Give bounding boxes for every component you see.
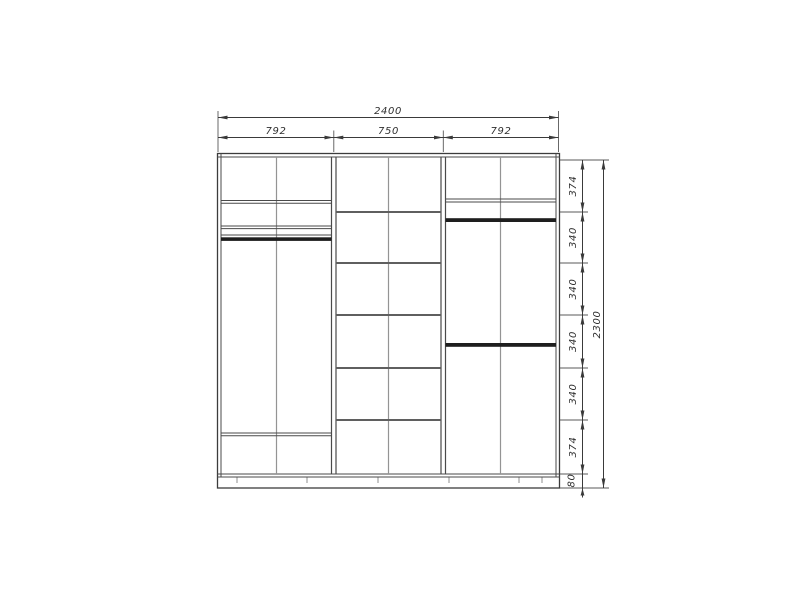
right-middle-hanging-rod: [446, 343, 557, 347]
dim-section-2-width-label: 750: [378, 126, 399, 137]
dim-plinth-height-label: 80: [567, 474, 578, 488]
dim-overall-height-label: 2300: [592, 311, 603, 339]
right-upper-hanging-rod: [446, 218, 557, 222]
plinth-dim-arrow: [581, 488, 585, 495]
dimension-top: 2400 792 750 792: [218, 106, 559, 152]
wardrobe-drawing-canvas: 2400 792 750 792 374 340 340 340: [0, 0, 800, 600]
dim-row-6-height-label: 374: [568, 437, 579, 458]
plinth-base: [237, 478, 542, 484]
dim-overall-width-label: 2400: [374, 106, 402, 117]
dim-row-4-height-label: 340: [568, 331, 579, 352]
dim-section-3-width-label: 792: [491, 126, 512, 137]
dim-row-2-height-label: 340: [568, 227, 579, 248]
wardrobe-front-elevation: 2400 792 750 792 374 340 340 340: [0, 0, 800, 600]
dim-row-3-height-label: 340: [568, 279, 579, 300]
dimension-right: 374 340 340 340 340 374 80 2300: [560, 160, 609, 498]
dim-section-1-width-label: 792: [266, 126, 287, 137]
left-hanging-rod: [221, 237, 332, 241]
dim-row-1-height-label: 374: [568, 176, 579, 197]
dim-row-5-height-label: 340: [568, 384, 579, 405]
